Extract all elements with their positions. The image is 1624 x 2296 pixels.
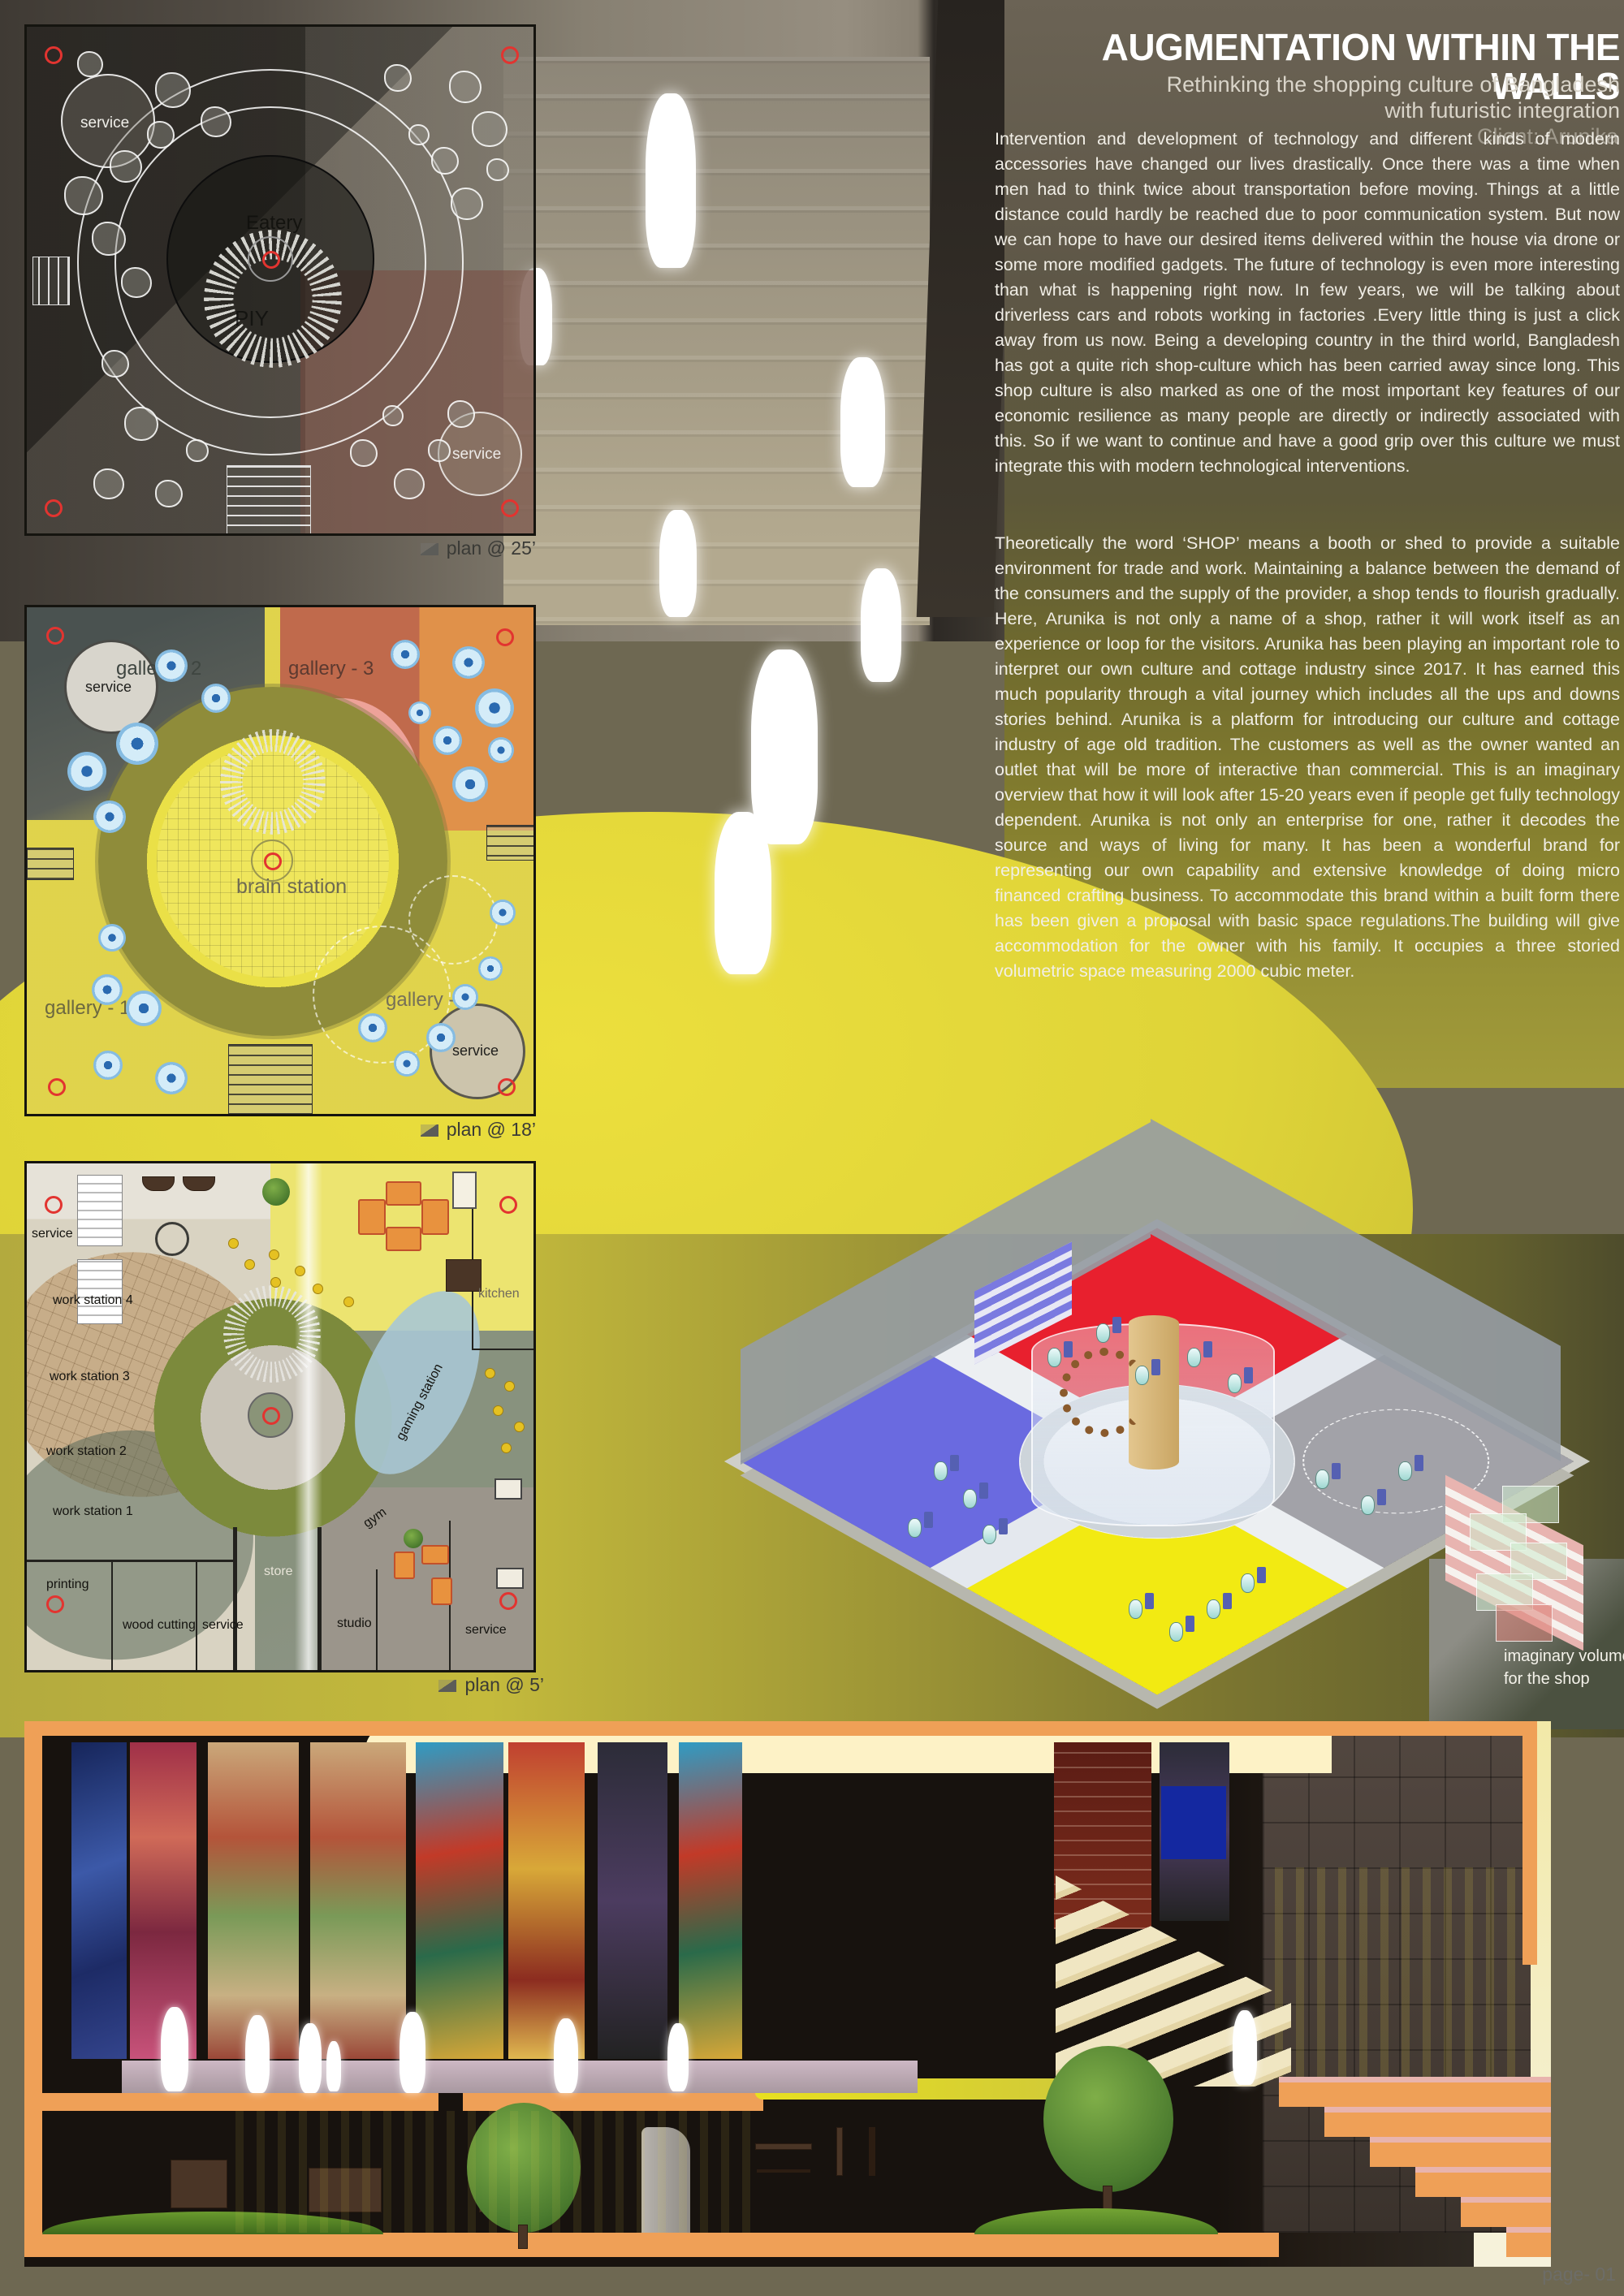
furniture-blob xyxy=(77,51,103,77)
furniture-blob xyxy=(110,150,142,183)
page-number: page- 01 xyxy=(1494,2264,1616,2285)
furniture-blob xyxy=(384,64,412,92)
furniture-blob xyxy=(93,468,124,499)
person-silhouette xyxy=(840,357,885,487)
display-pod xyxy=(475,688,514,727)
axon-screen xyxy=(1064,1341,1073,1357)
furniture-blob xyxy=(201,106,231,137)
plan3-service-bottom-label: service xyxy=(465,1623,507,1638)
plan3-corner-marker xyxy=(499,1196,517,1214)
axon-screen xyxy=(1203,1341,1212,1357)
section-render xyxy=(24,1721,1551,2267)
axon-screen xyxy=(1244,1367,1253,1383)
furniture-blob xyxy=(447,400,475,428)
display-pod xyxy=(488,737,514,763)
person-silhouette xyxy=(554,2018,578,2093)
section-mark-icon xyxy=(421,1124,438,1137)
furniture-blob xyxy=(155,480,183,507)
display-pod xyxy=(126,990,162,1026)
display-pod xyxy=(155,1062,188,1094)
furniture-blob xyxy=(92,222,126,256)
display-pod xyxy=(98,924,126,952)
axon-screen xyxy=(1112,1317,1121,1333)
axon-display-pod xyxy=(1096,1323,1110,1343)
plan3-chair-dots xyxy=(27,1163,533,1670)
furniture-blob xyxy=(121,267,152,298)
axonometric-view: imaginary volume for the shop xyxy=(690,1080,1624,1729)
chair-dot xyxy=(313,1284,323,1294)
board-subtitle-1: Rethinking the shopping culture of Bangl… xyxy=(995,71,1620,98)
display-pod xyxy=(408,701,431,724)
axon-display-pod xyxy=(1315,1470,1329,1489)
axon-display-pod xyxy=(1047,1348,1061,1367)
display-pod xyxy=(452,766,488,802)
display-pod xyxy=(433,726,462,755)
display-pod xyxy=(452,984,478,1010)
axon-screen xyxy=(999,1518,1008,1534)
plan1-caption-text: plan @ 25’ xyxy=(447,537,536,559)
display-pod xyxy=(201,684,231,713)
display-pod xyxy=(394,1051,420,1077)
chair-dot xyxy=(501,1443,512,1453)
axon-screen xyxy=(1415,1455,1423,1471)
axon-screen xyxy=(1257,1567,1266,1583)
display-pod xyxy=(426,1023,456,1052)
display-pod xyxy=(358,1013,387,1042)
plan3-service-mid-label: service xyxy=(202,1618,244,1633)
plan3-kitchen-label: kitchen xyxy=(478,1287,520,1301)
chair-dot xyxy=(514,1422,525,1432)
furniture-blob xyxy=(64,176,103,215)
person-silhouette xyxy=(1233,2010,1257,2085)
floor-plan-5ft: service work station 4 work station 3 wo… xyxy=(24,1161,536,1672)
axon-display-pod xyxy=(1187,1348,1201,1367)
furniture-blob xyxy=(186,439,209,462)
chair-dot xyxy=(485,1368,495,1379)
plan3-caption-text: plan @ 5’ xyxy=(464,1674,544,1695)
display-pod xyxy=(391,640,420,669)
plan3-studio-label: studio xyxy=(337,1616,372,1631)
chair-dot xyxy=(244,1259,255,1270)
display-pod xyxy=(116,723,158,765)
presentation-board: service service Eatery PIY plan @ 25’ se… xyxy=(0,0,1624,2296)
plan3-ws1-label: work station 1 xyxy=(53,1504,133,1519)
person-silhouette xyxy=(400,2012,425,2093)
chair-dot xyxy=(270,1277,281,1288)
furniture-blob xyxy=(147,121,175,149)
plan3-store-label: store xyxy=(264,1564,293,1579)
plan2-display-pods xyxy=(27,607,533,1114)
person-silhouette xyxy=(861,568,901,682)
volume-label-line2: for the shop xyxy=(1504,1668,1624,1690)
display-pod xyxy=(452,646,485,679)
display-pod xyxy=(490,900,516,926)
person-silhouette xyxy=(326,2041,341,2091)
axon-screen xyxy=(950,1455,959,1471)
display-pod xyxy=(155,650,188,682)
axon-display-pod xyxy=(963,1489,977,1508)
chair-dot xyxy=(493,1405,503,1416)
plan3-ws2-label: work station 2 xyxy=(46,1444,127,1459)
section-mark-icon xyxy=(438,1680,456,1692)
section-mark-icon xyxy=(421,543,438,555)
display-pod xyxy=(93,1051,123,1080)
plan3-printing-label: printing xyxy=(46,1577,89,1592)
axon-display-pod xyxy=(1169,1622,1183,1642)
furniture-blob xyxy=(394,468,425,499)
plan1-furniture xyxy=(27,27,533,533)
chair-dot xyxy=(228,1238,239,1249)
chair-dot xyxy=(343,1297,354,1307)
plan3-ws3-label: work station 3 xyxy=(50,1370,130,1384)
plan3-wood-cutting-label: wood cutting xyxy=(123,1618,196,1633)
axon-screen xyxy=(979,1482,988,1499)
plan2-caption: plan @ 18’ xyxy=(341,1119,536,1146)
volume-cube-red xyxy=(1496,1604,1553,1642)
plan2-caption-text: plan @ 18’ xyxy=(447,1119,536,1140)
plan3-ws4-label: work station 4 xyxy=(53,1293,133,1308)
axon-display-pod xyxy=(1228,1374,1242,1393)
axon-screen xyxy=(1332,1463,1341,1479)
axon-display-pod xyxy=(1135,1366,1149,1385)
chair-dot xyxy=(269,1249,279,1260)
furniture-blob xyxy=(451,188,483,220)
furniture-blob xyxy=(428,439,451,462)
axon-screen xyxy=(1145,1593,1154,1609)
furniture-blob xyxy=(449,71,482,103)
axon-display-pod xyxy=(1241,1573,1255,1593)
imaginary-volume-label: imaginary volume for the shop xyxy=(1504,1645,1624,1690)
person-silhouette xyxy=(715,812,771,974)
furniture-blob xyxy=(486,158,509,181)
axon-display-pod xyxy=(908,1518,922,1538)
section-people xyxy=(24,1721,1551,2267)
display-pod xyxy=(92,974,123,1005)
axon-screen xyxy=(1377,1489,1386,1505)
display-pod xyxy=(93,801,126,833)
plan3-service-top-label: service xyxy=(32,1227,73,1241)
plan3-caption: plan @ 5’ xyxy=(349,1674,544,1702)
axon-screen xyxy=(924,1512,933,1528)
axon-display-pod xyxy=(1361,1495,1375,1515)
furniture-blob xyxy=(101,350,129,378)
plan3-corner-marker xyxy=(46,1595,64,1613)
board-subtitle-2: with futuristic integration xyxy=(995,97,1620,124)
person-silhouette xyxy=(245,2015,270,2093)
person-silhouette xyxy=(299,2023,322,2093)
axon-display-pod xyxy=(983,1525,996,1544)
person-silhouette xyxy=(161,2007,188,2091)
furniture-blob xyxy=(155,72,191,108)
person-silhouette xyxy=(646,93,696,268)
axon-display-pod xyxy=(1207,1599,1220,1619)
display-pod xyxy=(478,956,503,981)
person-silhouette xyxy=(667,2023,689,2091)
floor-plan-18ft: service service gallery - 2 gallery - 3 … xyxy=(24,605,536,1116)
furniture-blob xyxy=(124,407,158,441)
plan3-corner-marker xyxy=(45,1196,63,1214)
volume-label-line1: imaginary volume xyxy=(1504,1645,1624,1668)
axon-display-pod xyxy=(1398,1461,1412,1481)
body-paragraph-1: Intervention and development of technolo… xyxy=(995,127,1620,479)
chair-dot xyxy=(504,1381,515,1392)
imaginary-volume-group: imaginary volume for the shop xyxy=(1453,1486,1624,1729)
axon-screen xyxy=(1151,1359,1160,1375)
person-silhouette xyxy=(751,650,818,844)
axon-screen xyxy=(1186,1616,1194,1632)
furniture-blob xyxy=(472,111,508,147)
furniture-blob xyxy=(382,405,404,426)
axon-display-pod xyxy=(934,1461,948,1481)
plan3-corner-marker xyxy=(499,1592,517,1610)
person-silhouette xyxy=(659,510,697,617)
furniture-blob xyxy=(431,147,459,175)
floor-plan-25ft: service service Eatery PIY xyxy=(24,24,536,536)
axon-screen xyxy=(1223,1593,1232,1609)
body-paragraph-2: Theoretically the word ‘SHOP’ means a bo… xyxy=(995,531,1620,984)
text-column: AUGMENTATION WITHIN THE WALLS Rethinking… xyxy=(995,28,1620,1075)
chair-dot xyxy=(295,1266,305,1276)
furniture-blob xyxy=(350,439,378,467)
plan1-caption: plan @ 25’ xyxy=(341,537,536,565)
axon-display-pod xyxy=(1129,1599,1142,1619)
display-pod xyxy=(67,752,106,791)
furniture-blob xyxy=(408,124,430,145)
